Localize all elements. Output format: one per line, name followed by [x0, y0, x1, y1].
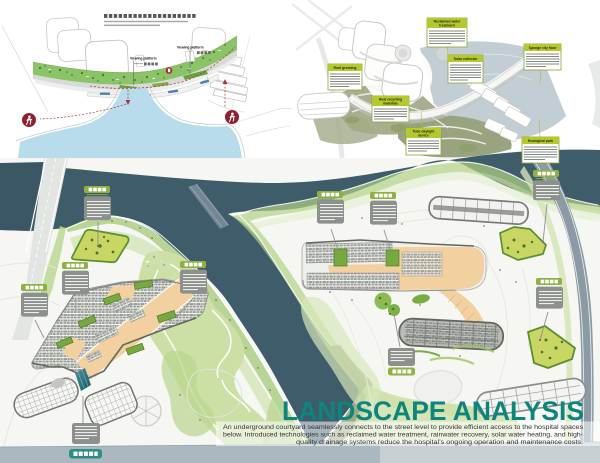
svg-text:device: device — [418, 134, 429, 138]
svg-text:Viewing platform: Viewing platform — [130, 57, 157, 61]
svg-text:LANDSCAPE ANALYSIS: LANDSCAPE ANALYSIS — [282, 396, 584, 426]
svg-text:Roof greening: Roof greening — [334, 66, 357, 70]
svg-text:materials: materials — [383, 102, 398, 106]
svg-text:Solar collector: Solar collector — [454, 57, 478, 61]
svg-text:below. Introduced technologies: below. Introduced technologies such as r… — [223, 432, 583, 439]
svg-text:An underground courtyard seaml: An underground courtyard seamlessly conn… — [223, 424, 583, 431]
svg-text:Viewing platform: Viewing platform — [177, 46, 204, 50]
svg-text:Ecological park: Ecological park — [528, 139, 553, 143]
svg-text:treatment: treatment — [439, 24, 455, 28]
svg-text:quality drainage systems reduc: quality drainage systems reduce the hosp… — [296, 439, 583, 446]
svg-text:Sponge city floor: Sponge city floor — [529, 46, 557, 50]
